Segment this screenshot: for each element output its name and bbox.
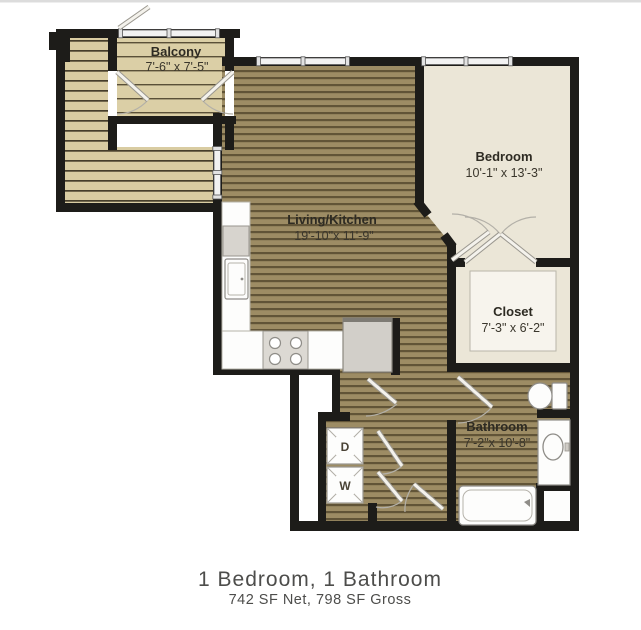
living-window — [257, 57, 350, 66]
toilet — [528, 383, 567, 409]
balcony-window — [119, 29, 220, 38]
washer-label: W — [339, 479, 351, 493]
dishwasher — [223, 226, 249, 256]
closet-dims: 7'-3" x 6'-2" — [482, 321, 545, 335]
plan-title: 1 Bedroom, 1 Bathroom — [198, 568, 442, 591]
side-window — [213, 147, 222, 200]
plan-subtitle: 742 SF Net, 798 SF Gross — [229, 592, 412, 608]
vanity-sink — [538, 420, 570, 485]
caption: 1 Bedroom, 1 Bathroom 742 SF Net, 798 SF… — [198, 568, 442, 608]
kitchen-sink — [225, 259, 248, 299]
floorplan-page: D W — [0, 0, 641, 630]
bathtub — [459, 486, 536, 525]
closet-label: Closet — [493, 304, 533, 319]
balcony-dims: 7'-6" x 7'-5" — [146, 60, 209, 74]
living-kitchen-dims: 19'-10"x 11'-9" — [294, 229, 373, 243]
bathroom-label: Bathroom — [466, 419, 527, 434]
bath-nook — [544, 491, 570, 521]
balcony-label: Balcony — [151, 44, 202, 59]
bedroom-label: Bedroom — [475, 149, 532, 164]
bedroom-dims: 10'-1" x 13'-3" — [466, 166, 543, 180]
bedroom-window — [422, 57, 513, 66]
floorplan-drawing: D W — [0, 0, 641, 630]
living-kitchen-label: Living/Kitchen — [287, 212, 377, 227]
stove — [263, 331, 308, 369]
screen-top-edge — [0, 0, 641, 3]
bathroom-dims: 7'-2"x 10'-8" — [464, 436, 530, 450]
refrigerator — [343, 318, 392, 372]
dryer-label: D — [341, 440, 350, 454]
